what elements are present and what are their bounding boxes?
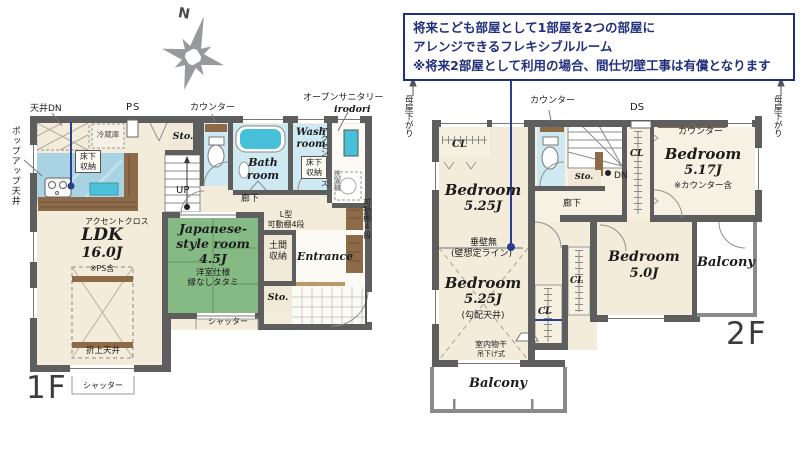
balcony-label-bottom: Balcony bbox=[468, 376, 528, 392]
floor-storage-label-kitchen: 床下 収納 bbox=[75, 150, 101, 173]
wash-basin-icon bbox=[344, 130, 358, 156]
open-sanitary-label: オープンサニタリー bbox=[303, 93, 383, 104]
bedroom1-size: 5.25J bbox=[440, 199, 526, 215]
entrance-step bbox=[294, 282, 345, 286]
stove-icon bbox=[45, 178, 71, 197]
bedroom1-name: Bedroom bbox=[440, 181, 526, 199]
roof-lowered-label-left: 母屋下がり bbox=[403, 95, 413, 155]
roof-lowered-label-right: 母屋下がり bbox=[772, 95, 782, 155]
doma-storage-label: 土間 収納 bbox=[264, 241, 292, 263]
jp-room-line2: style room bbox=[167, 236, 259, 251]
movable-shelf-label-right: 可動棚4段 bbox=[362, 198, 372, 240]
bedroom4-name: Bedroom bbox=[598, 249, 690, 266]
closet-label-mid-left: CL bbox=[538, 307, 552, 318]
indoor-drying-label-group: 室内物干 吊下げ式 bbox=[466, 340, 516, 358]
ds-box bbox=[631, 121, 651, 128]
closet-label-mid-right: CL bbox=[570, 276, 584, 287]
callout-line3: ※将来2部屋として利用の場合、間仕切壁工事は有償となります bbox=[413, 57, 785, 76]
dn-label: DN bbox=[614, 171, 628, 182]
bedroom3-label-group: Bedroom 5.17J ※カウンター含 bbox=[652, 145, 754, 191]
entrance-label: Entrance bbox=[297, 250, 353, 263]
bedroom2-name: Bedroom bbox=[438, 274, 528, 292]
no-hanging-wall-label: 垂壁無 bbox=[470, 238, 497, 249]
ldk-name: LDK bbox=[70, 225, 134, 245]
storage-label-upper: Sto. bbox=[168, 131, 198, 142]
japanese-room-label-group: Japanese- style room 4.5J 洋室仕様 縁なしタタミ bbox=[167, 221, 259, 288]
floor2-plan bbox=[410, 78, 784, 413]
storage-label-lower: Sto. bbox=[264, 292, 292, 303]
stairs-1f bbox=[165, 155, 200, 212]
compass-rose bbox=[153, 8, 234, 98]
ceiling-dn-label: 天井DN bbox=[30, 104, 62, 115]
counter-label-2f-toilet: カウンター bbox=[530, 96, 575, 107]
bedroom1-label-group: Bedroom 5.25J bbox=[440, 181, 526, 215]
bathtub-icon bbox=[236, 126, 285, 152]
floor2-label: 2F bbox=[726, 316, 768, 353]
bedroom2-label-group: Bedroom 5.25J (勾配天井) bbox=[438, 274, 528, 321]
bedroom3-note: ※カウンター含 bbox=[652, 181, 754, 191]
fridge-label: 冷蔵庫 bbox=[94, 130, 122, 139]
closet-label-topleft: CL bbox=[452, 139, 467, 151]
balcony-label-right: Balcony bbox=[697, 255, 755, 271]
floor-storage-label-wash: 床下 収納 bbox=[301, 156, 327, 179]
jp-room-line1: Japanese- bbox=[167, 221, 259, 236]
callout-line1: 将来こども部屋として1部屋を2つの部屋に bbox=[413, 19, 785, 38]
bedroom2-size: 5.25J bbox=[438, 292, 528, 308]
counter-label-2f-bedroom: カウンター bbox=[678, 127, 723, 138]
washer-label: 洗濯機 bbox=[333, 170, 341, 202]
bedroom2-note: (勾配天井) bbox=[438, 311, 528, 322]
indoor-drying-line2: 吊下げ式 bbox=[466, 350, 516, 358]
shutter-label-jp: シャッター bbox=[204, 317, 252, 327]
jp-room-note1: 洋室仕様 bbox=[167, 268, 259, 278]
up-label: UP bbox=[176, 185, 189, 197]
storage-label-2f: Sto. bbox=[568, 172, 600, 182]
floorplan-page: 将来こども部屋として1部屋を2つの部屋に アレンジできるフレキシブルルーム ※将… bbox=[0, 0, 800, 457]
bath-room-label: Bath room bbox=[240, 156, 286, 182]
hallway-label-2f: 廊下 bbox=[563, 199, 581, 210]
callout-note: 将来こども部屋として1部屋を2つの部屋に アレンジできるフレキシブルルーム ※将… bbox=[403, 13, 795, 81]
bedroom4-label-group: Bedroom 5.0J bbox=[598, 249, 690, 281]
irodori-label: irodori bbox=[334, 104, 371, 115]
closet-label-topright: CL bbox=[630, 149, 644, 160]
coffered-ceiling-label: 折上天井 bbox=[80, 346, 126, 356]
jp-room-note2: 縁なしタタミ bbox=[167, 278, 259, 288]
hallway-label-1f: 廊下 bbox=[241, 194, 259, 205]
ps-label: PS bbox=[126, 102, 140, 114]
shutter-label-ldk: シャッター bbox=[80, 381, 126, 391]
kitchen-sink bbox=[90, 183, 118, 195]
indoor-drying-line1: 室内物干 bbox=[466, 340, 516, 350]
bedroom4-size: 5.0J bbox=[598, 266, 690, 282]
ldk-note: ※PS含 bbox=[70, 264, 134, 274]
counter-label-1f: カウンター bbox=[190, 103, 235, 114]
toilet-counter-1f bbox=[205, 124, 227, 132]
floor1-label: 1F bbox=[26, 370, 68, 407]
ldk-size: 16.0J bbox=[70, 245, 134, 262]
ldk-label-group: LDK 16.0J ※PS含 bbox=[70, 225, 134, 274]
bedroom3-size: 5.17J bbox=[652, 163, 754, 179]
popup-ceiling-label: ポップアップ天井 bbox=[9, 126, 20, 236]
l-shelf-label: L型 可動棚4段 bbox=[262, 210, 310, 229]
jp-room-size: 4.5J bbox=[167, 251, 259, 266]
stairs-2f bbox=[568, 124, 624, 176]
ds-label: DS bbox=[630, 102, 644, 114]
assumed-wall-label: (壁想定ライン) bbox=[451, 249, 512, 260]
toilet-icon-2f bbox=[542, 137, 558, 169]
callout-line2: アレンジできるフレキシブルルーム bbox=[413, 38, 785, 57]
bedroom3-name: Bedroom bbox=[652, 145, 754, 163]
